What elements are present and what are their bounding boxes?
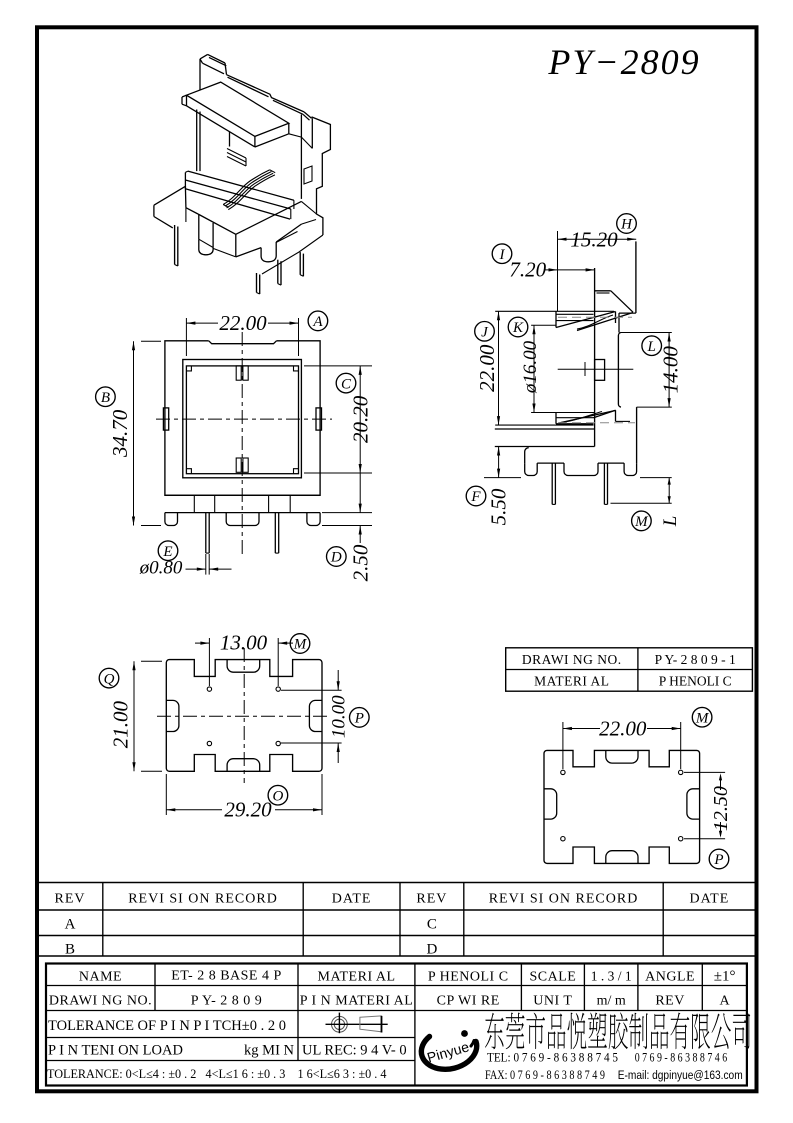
svg-text:TOLERANCE: 0<L≤4 : ±0 . 2 4<: TOLERANCE: 0<L≤4 : ±0 . 2 4<L≤1 6 : ±0 .… (47, 1067, 386, 1081)
svg-text:PY−2809: PY−2809 (547, 42, 700, 82)
svg-text:kg MI N: kg MI N (244, 1043, 294, 1059)
svg-text:20.20: 20.20 (349, 395, 373, 443)
svg-text:J: J (481, 325, 489, 341)
svg-text:REV: REV (416, 892, 447, 907)
svg-text:29.20: 29.20 (224, 797, 272, 821)
svg-text:A: A (720, 994, 731, 1009)
svg-text:ø0.80: ø0.80 (139, 558, 183, 579)
svg-text:B: B (65, 942, 75, 958)
svg-text:DRAWI NG NO.: DRAWI NG NO. (522, 652, 622, 667)
svg-text:P Y- 2 8 0 9 - 1: P Y- 2 8 0 9 - 1 (655, 652, 736, 667)
svg-text:UNI T: UNI T (533, 994, 572, 1009)
svg-text:10.00: 10.00 (329, 695, 350, 738)
svg-text:SCALE: SCALE (529, 970, 576, 985)
svg-text:ø16.00: ø16.00 (520, 340, 541, 394)
svg-text:13.00: 13.00 (220, 631, 268, 655)
svg-text:C: C (341, 376, 352, 392)
svg-text:TEL: 0 7 6 9 - 8 6 3 8 8 7 4 5: TEL: 0 7 6 9 - 8 6 3 8 8 7 4 5 (487, 1051, 618, 1065)
svg-text:M: M (293, 637, 308, 653)
svg-text:REV: REV (655, 994, 685, 1009)
svg-text:DRAWI NG NO.: DRAWI NG NO. (49, 994, 152, 1009)
svg-text:2.50: 2.50 (349, 544, 373, 581)
svg-text:P: P (713, 852, 723, 868)
svg-text:5.50: 5.50 (487, 488, 511, 525)
svg-text:K: K (512, 320, 524, 336)
svg-text:C: C (427, 917, 437, 933)
svg-text:34.70: 34.70 (108, 409, 132, 458)
svg-text:REVI SI ON RECORD: REVI SI ON RECORD (128, 892, 278, 907)
svg-text:CP WI RE: CP WI RE (437, 994, 500, 1009)
svg-text:1 . 3 / 1: 1 . 3 / 1 (591, 969, 632, 984)
svg-text:±1°: ±1° (714, 969, 736, 985)
svg-text:O: O (272, 788, 283, 804)
svg-text:REV: REV (55, 892, 86, 907)
svg-text:15.20: 15.20 (570, 228, 618, 252)
svg-text:L: L (647, 339, 656, 355)
svg-text:E-mail: dgpinyue@163.com: E-mail: dgpinyue@163.com (618, 1068, 743, 1082)
svg-text:7.20: 7.20 (509, 257, 546, 281)
svg-text:P HENOLI C: P HENOLI C (428, 970, 509, 985)
svg-text:P I N TENI ON LOAD: P I N TENI ON LOAD (48, 1043, 183, 1059)
svg-text:22.00: 22.00 (599, 716, 647, 740)
svg-text:22.00: 22.00 (475, 344, 499, 392)
svg-text:P HENOLI C: P HENOLI C (659, 674, 732, 689)
svg-text:B: B (101, 390, 110, 406)
svg-text:21.00: 21.00 (109, 700, 133, 748)
svg-text:A: A (312, 314, 323, 330)
svg-text:A: A (65, 917, 76, 933)
svg-text:FAX: 0 7 6 9 - 8 6 3 8 8 7 4 9: FAX: 0 7 6 9 - 8 6 3 8 8 7 4 9 (485, 1068, 605, 1082)
svg-text:H: H (620, 217, 633, 233)
svg-text:P Y- 2 8 0 9: P Y- 2 8 0 9 (191, 994, 262, 1009)
svg-text:M: M (695, 710, 710, 726)
svg-text:D: D (426, 942, 437, 958)
svg-text:M: M (634, 514, 649, 530)
svg-text:I: I (499, 247, 506, 263)
svg-text:P: P (354, 711, 364, 727)
svg-text:DATE: DATE (690, 892, 730, 907)
svg-text:DATE: DATE (332, 892, 372, 907)
svg-text:L: L (660, 516, 681, 528)
svg-text:D: D (330, 550, 342, 566)
svg-text:P I N MATERI AL: P I N MATERI AL (300, 994, 414, 1009)
svg-text:REVI SI ON RECORD: REVI SI ON RECORD (489, 892, 639, 907)
svg-text:UL REC: 9 4 V- 0: UL REC: 9 4 V- 0 (302, 1043, 407, 1059)
svg-text:TOLERANCE OF P I N P I TCH±: TOLERANCE OF P I N P I TCH±0 . 2 0 (48, 1018, 286, 1034)
svg-text:F: F (470, 489, 481, 505)
svg-text:14.00: 14.00 (659, 346, 683, 394)
svg-text:ET- 2 8 BASE 4 P: ET- 2 8 BASE 4 P (171, 969, 282, 984)
svg-text:Q: Q (104, 671, 115, 687)
svg-text:m/ m: m/ m (597, 994, 626, 1009)
svg-text:12.50: 12.50 (710, 786, 732, 831)
svg-text:MATERI AL: MATERI AL (318, 970, 396, 985)
svg-text:E: E (162, 544, 172, 560)
svg-text:ANGLE: ANGLE (645, 970, 695, 985)
svg-text:22.00: 22.00 (219, 311, 267, 335)
svg-text:NAME: NAME (79, 970, 122, 985)
svg-text:MATERI AL: MATERI AL (534, 674, 609, 689)
svg-text:0 7 6 9 - 8 6 3 8 8 7 4 6: 0 7 6 9 - 8 6 3 8 8 7 4 6 (635, 1051, 728, 1065)
